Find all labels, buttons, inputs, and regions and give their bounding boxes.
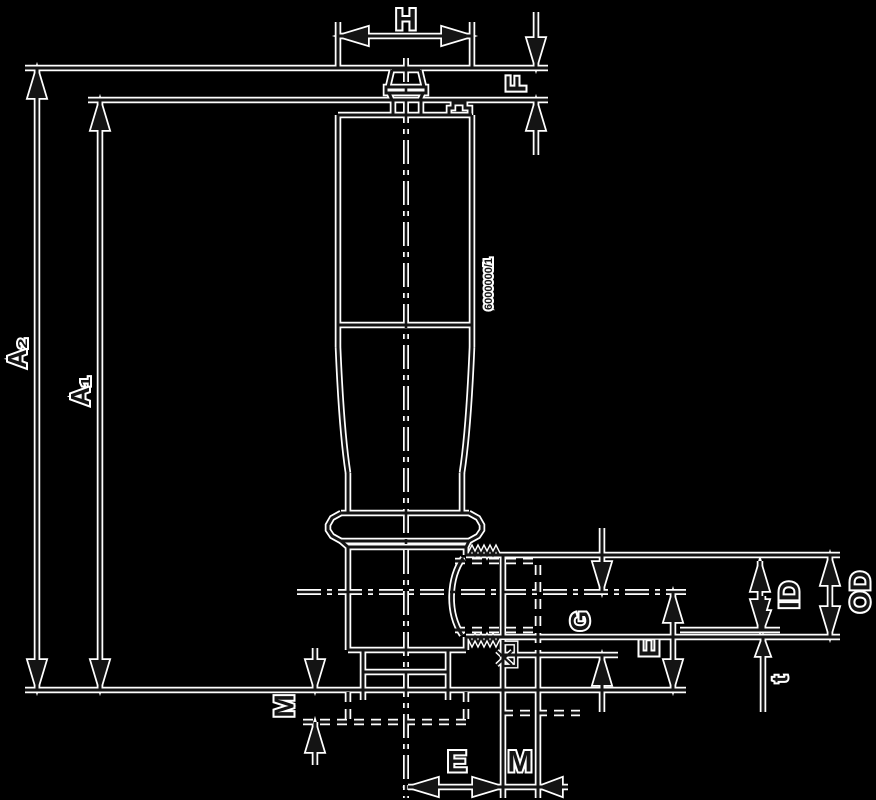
- label-dim-ID: ID: [774, 581, 805, 609]
- technical-drawing: HFA₂A₁MGEIDODtEM6000000/1: [0, 0, 876, 800]
- drawing-page: HFA₂A₁MGEIDODtEM6000000/1: [0, 0, 876, 800]
- label-dim-E-bottom: E: [447, 746, 467, 779]
- label-dim-F: F: [501, 75, 532, 92]
- label-dim-OD: OD: [845, 571, 876, 613]
- label-dim-t: t: [768, 675, 793, 683]
- label-dim-M-bottom: M: [508, 746, 533, 779]
- label-dim-H: H: [395, 4, 417, 37]
- label-dim-E-side: E: [634, 639, 665, 658]
- label-dim-A2: A₂: [2, 338, 32, 368]
- label-dim-A1: A₁: [65, 376, 95, 406]
- label-dim-G: G: [565, 611, 595, 631]
- label-body-code: 6000000/1: [483, 258, 495, 310]
- background: [0, 0, 876, 800]
- label-dim-M-left: M: [269, 694, 300, 717]
